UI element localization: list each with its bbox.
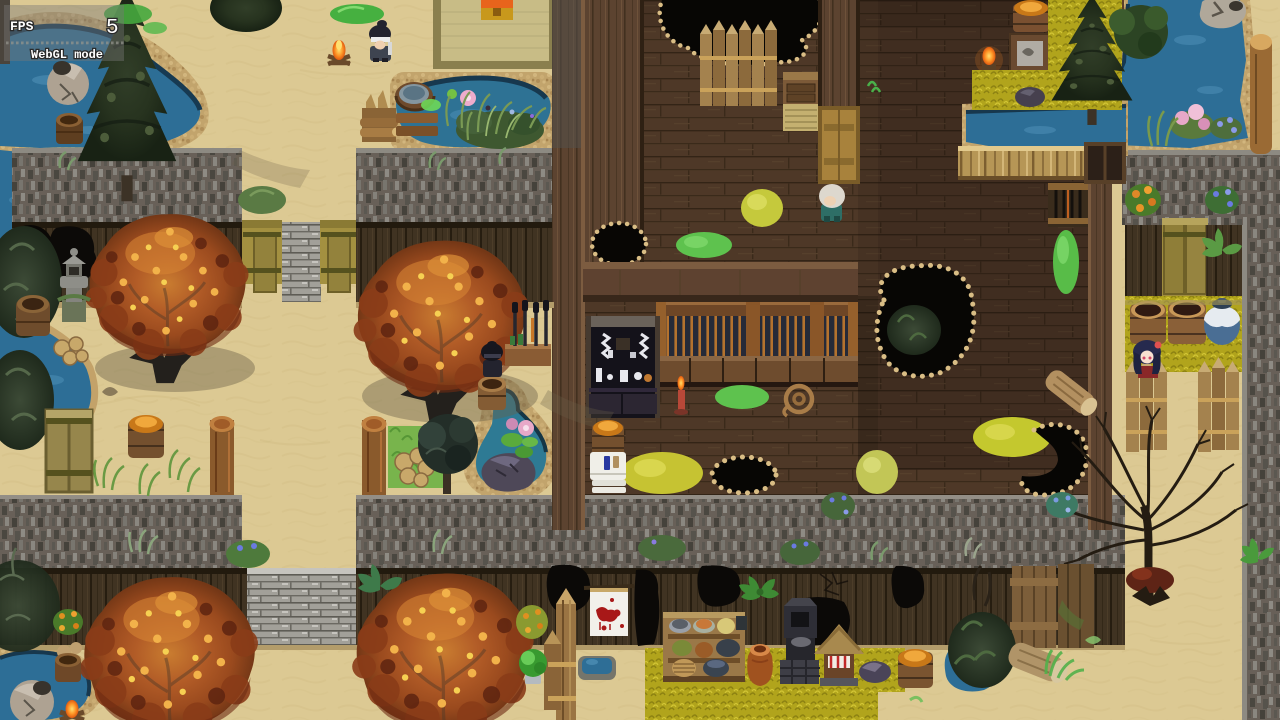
svg-text:FPS: FPS: [10, 19, 34, 34]
svg-text:WebGL mode: WebGL mode: [31, 48, 103, 62]
svg-text:5: 5: [106, 17, 119, 40]
